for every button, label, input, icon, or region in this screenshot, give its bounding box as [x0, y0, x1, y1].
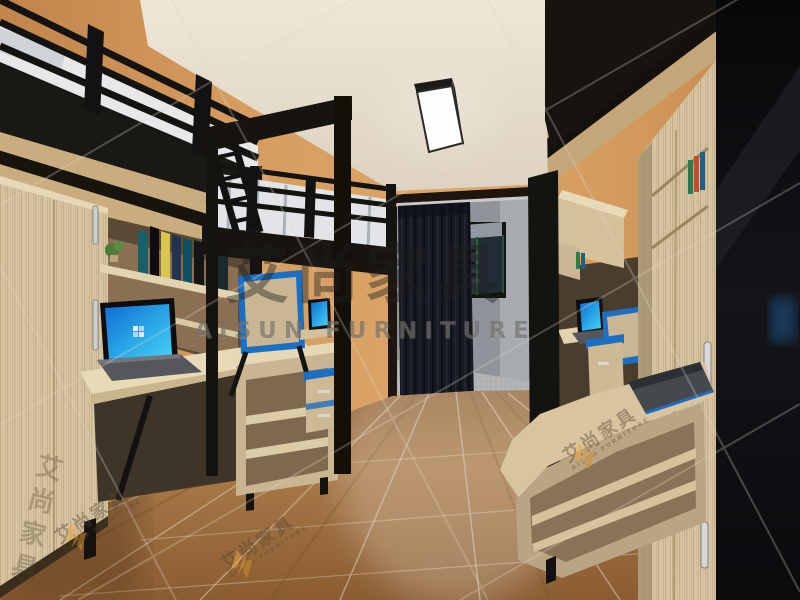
render-scene	[0, 0, 800, 600]
dorm-room-render: 艾尚家具 AISUN FURNITURE 艾尚家具 AISUN FURNITUR…	[0, 0, 800, 600]
